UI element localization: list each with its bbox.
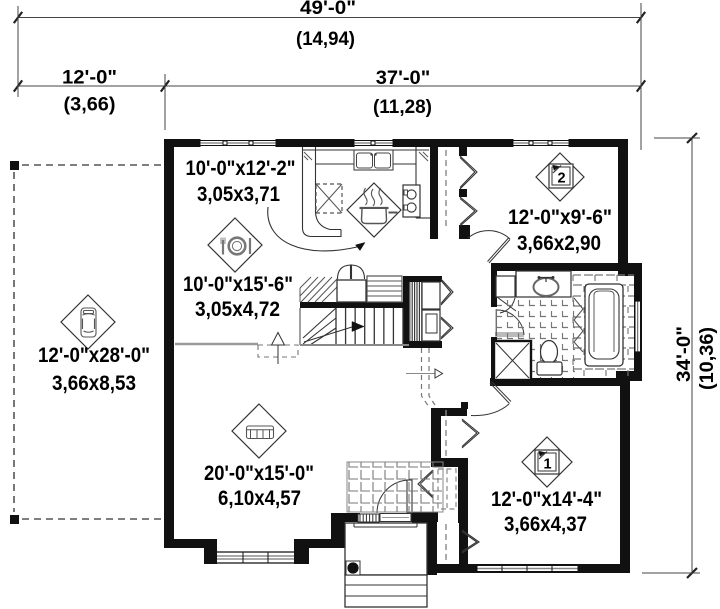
svg-text:49'-0": 49'-0" xyxy=(300,0,356,19)
svg-text:(3,66): (3,66) xyxy=(64,95,116,116)
svg-text:1: 1 xyxy=(543,457,551,473)
svg-text:12'-0"x9'-6": 12'-0"x9'-6" xyxy=(508,206,612,229)
svg-text:12'-0": 12'-0" xyxy=(62,68,117,89)
svg-text:34'-0": 34'-0" xyxy=(674,326,695,382)
svg-text:6,10x4,57: 6,10x4,57 xyxy=(218,487,301,510)
svg-text:10'-0"x12'-2": 10'-0"x12'-2" xyxy=(186,157,296,180)
svg-text:12'-0"x14'-4": 12'-0"x14'-4" xyxy=(491,488,602,511)
svg-text:37'-0": 37'-0" xyxy=(376,68,431,89)
svg-text:3,66x4,37: 3,66x4,37 xyxy=(504,513,587,536)
svg-text:(11,28): (11,28) xyxy=(373,97,432,118)
svg-text:3,66x2,90: 3,66x2,90 xyxy=(517,232,601,255)
svg-text:12'-0"x28'-0": 12'-0"x28'-0" xyxy=(38,344,150,367)
svg-text:(10,36): (10,36) xyxy=(697,327,718,390)
svg-text:10'-0"x15'-6": 10'-0"x15'-6" xyxy=(183,273,293,296)
svg-text:3,66x8,53: 3,66x8,53 xyxy=(52,372,136,395)
svg-text:3,05x4,72: 3,05x4,72 xyxy=(195,298,280,321)
svg-text:20'-0"x15'-0": 20'-0"x15'-0" xyxy=(204,462,314,485)
svg-text:3,05x3,71: 3,05x3,71 xyxy=(197,183,280,206)
svg-text:(14,94): (14,94) xyxy=(296,29,355,50)
svg-text:2: 2 xyxy=(557,171,565,187)
